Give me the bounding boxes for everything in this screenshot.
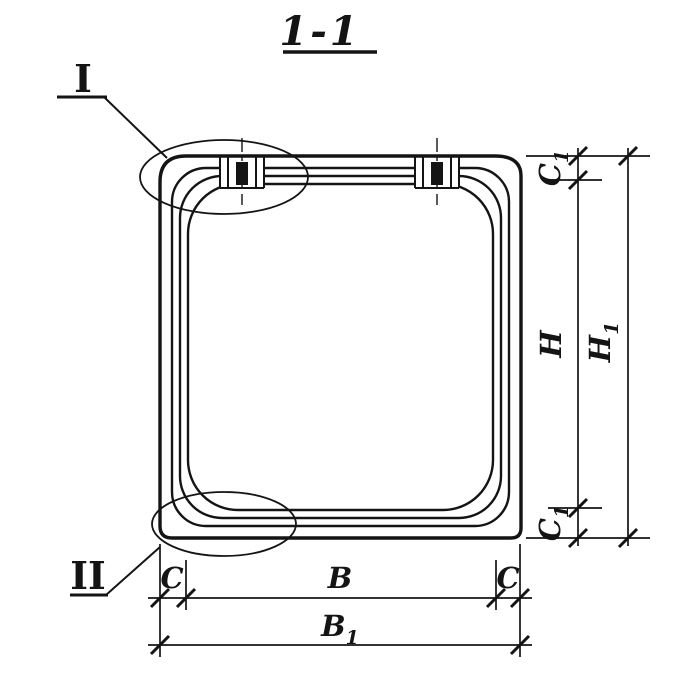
dim-label-c1-top-main: C	[533, 163, 567, 186]
right-dimensions: C1 H H1 C1	[526, 147, 650, 547]
inner-contour-3	[188, 184, 493, 510]
dim-label-b1: B1	[320, 609, 359, 649]
section-title: 1-1	[279, 8, 360, 55]
callout-1-label: I	[74, 56, 92, 101]
drawing-canvas: 1-1 I II	[0, 0, 700, 700]
dim-label-b: B	[327, 561, 353, 595]
dim-label-b1-sub: 1	[346, 627, 359, 649]
dim-label-b1-main: B	[320, 609, 346, 643]
dim-label-h1-sub: 1	[601, 322, 623, 335]
detail-circle-2	[152, 492, 296, 556]
dim-label-h1-main: H	[583, 333, 617, 363]
technical-drawing-section-1-1: 1-1 I II	[0, 0, 700, 700]
dim-label-h: H	[534, 329, 568, 359]
dim-label-c1-top-sub: 1	[551, 150, 573, 163]
dim-label-h1: H1	[583, 322, 623, 364]
inner-contour-1	[172, 168, 509, 526]
callout-2-label: II	[70, 553, 106, 598]
dim-label-c-left: C	[160, 561, 183, 595]
callout-1-group: I	[57, 56, 167, 158]
top-joint-left	[220, 138, 264, 205]
callout-2-group: II	[70, 547, 160, 598]
dim-label-c1-bottom-main: C	[533, 518, 567, 541]
dim-label-c1-bottom: C1	[533, 505, 573, 541]
top-joint-right	[415, 138, 459, 205]
inner-contour-2	[180, 176, 501, 518]
section-title-group: 1-1	[279, 8, 377, 55]
inner-contours	[172, 168, 509, 526]
bottom-dimensions: C B C B1	[148, 544, 532, 657]
callout-1-leader	[104, 97, 167, 158]
callout-2-leader	[106, 547, 160, 595]
dim-label-c1-bottom-sub: 1	[551, 505, 573, 518]
dim-label-c-right: C	[496, 561, 519, 595]
